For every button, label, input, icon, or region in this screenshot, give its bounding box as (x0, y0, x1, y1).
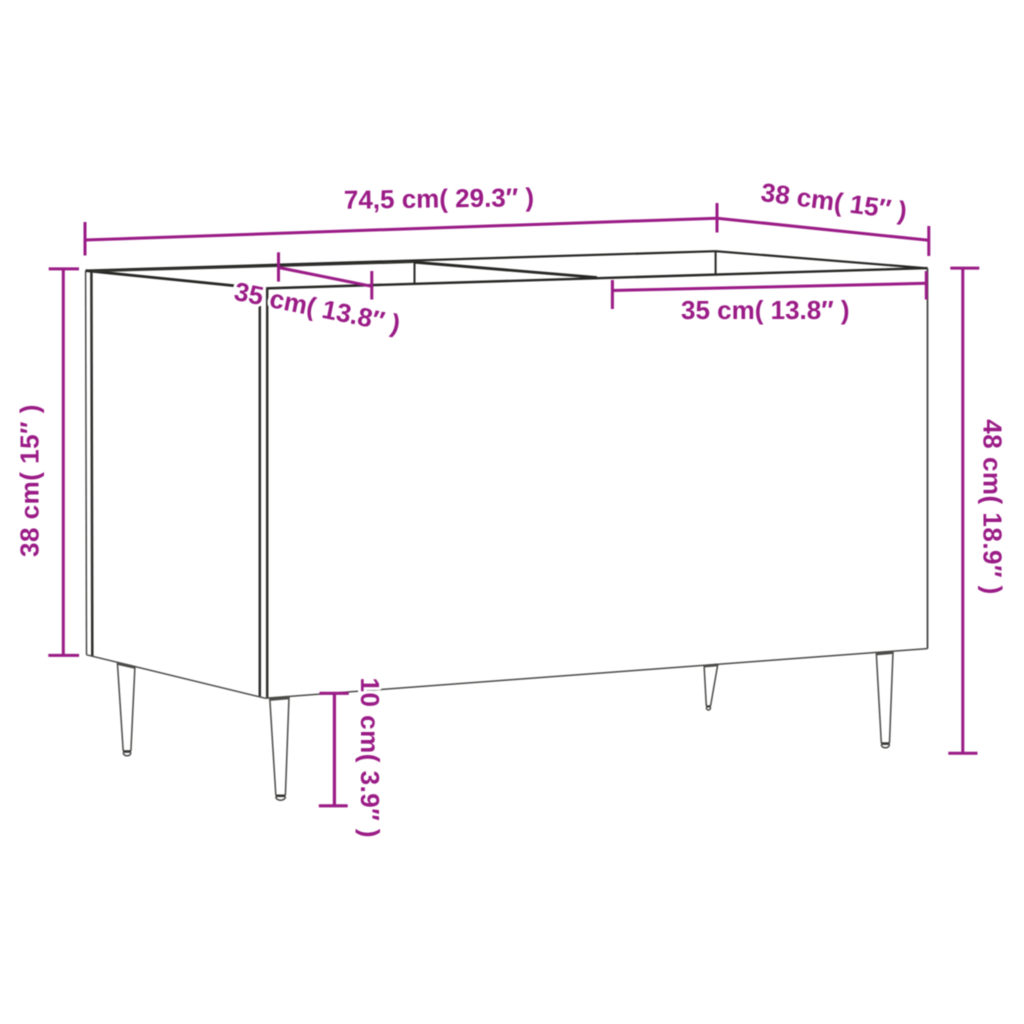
svg-text:10 cm( 3.9″ ): 10 cm( 3.9″ ) (355, 678, 385, 839)
svg-text:38 cm( 15″ ): 38 cm( 15″ ) (15, 404, 45, 557)
svg-text:74,5 cm( 29.3″ ): 74,5 cm( 29.3″ ) (344, 182, 535, 215)
svg-text:35 cm( 13.8″ ): 35 cm( 13.8″ ) (681, 295, 850, 325)
svg-text:48 cm( 18.9″ ): 48 cm( 18.9″ ) (978, 419, 1008, 595)
